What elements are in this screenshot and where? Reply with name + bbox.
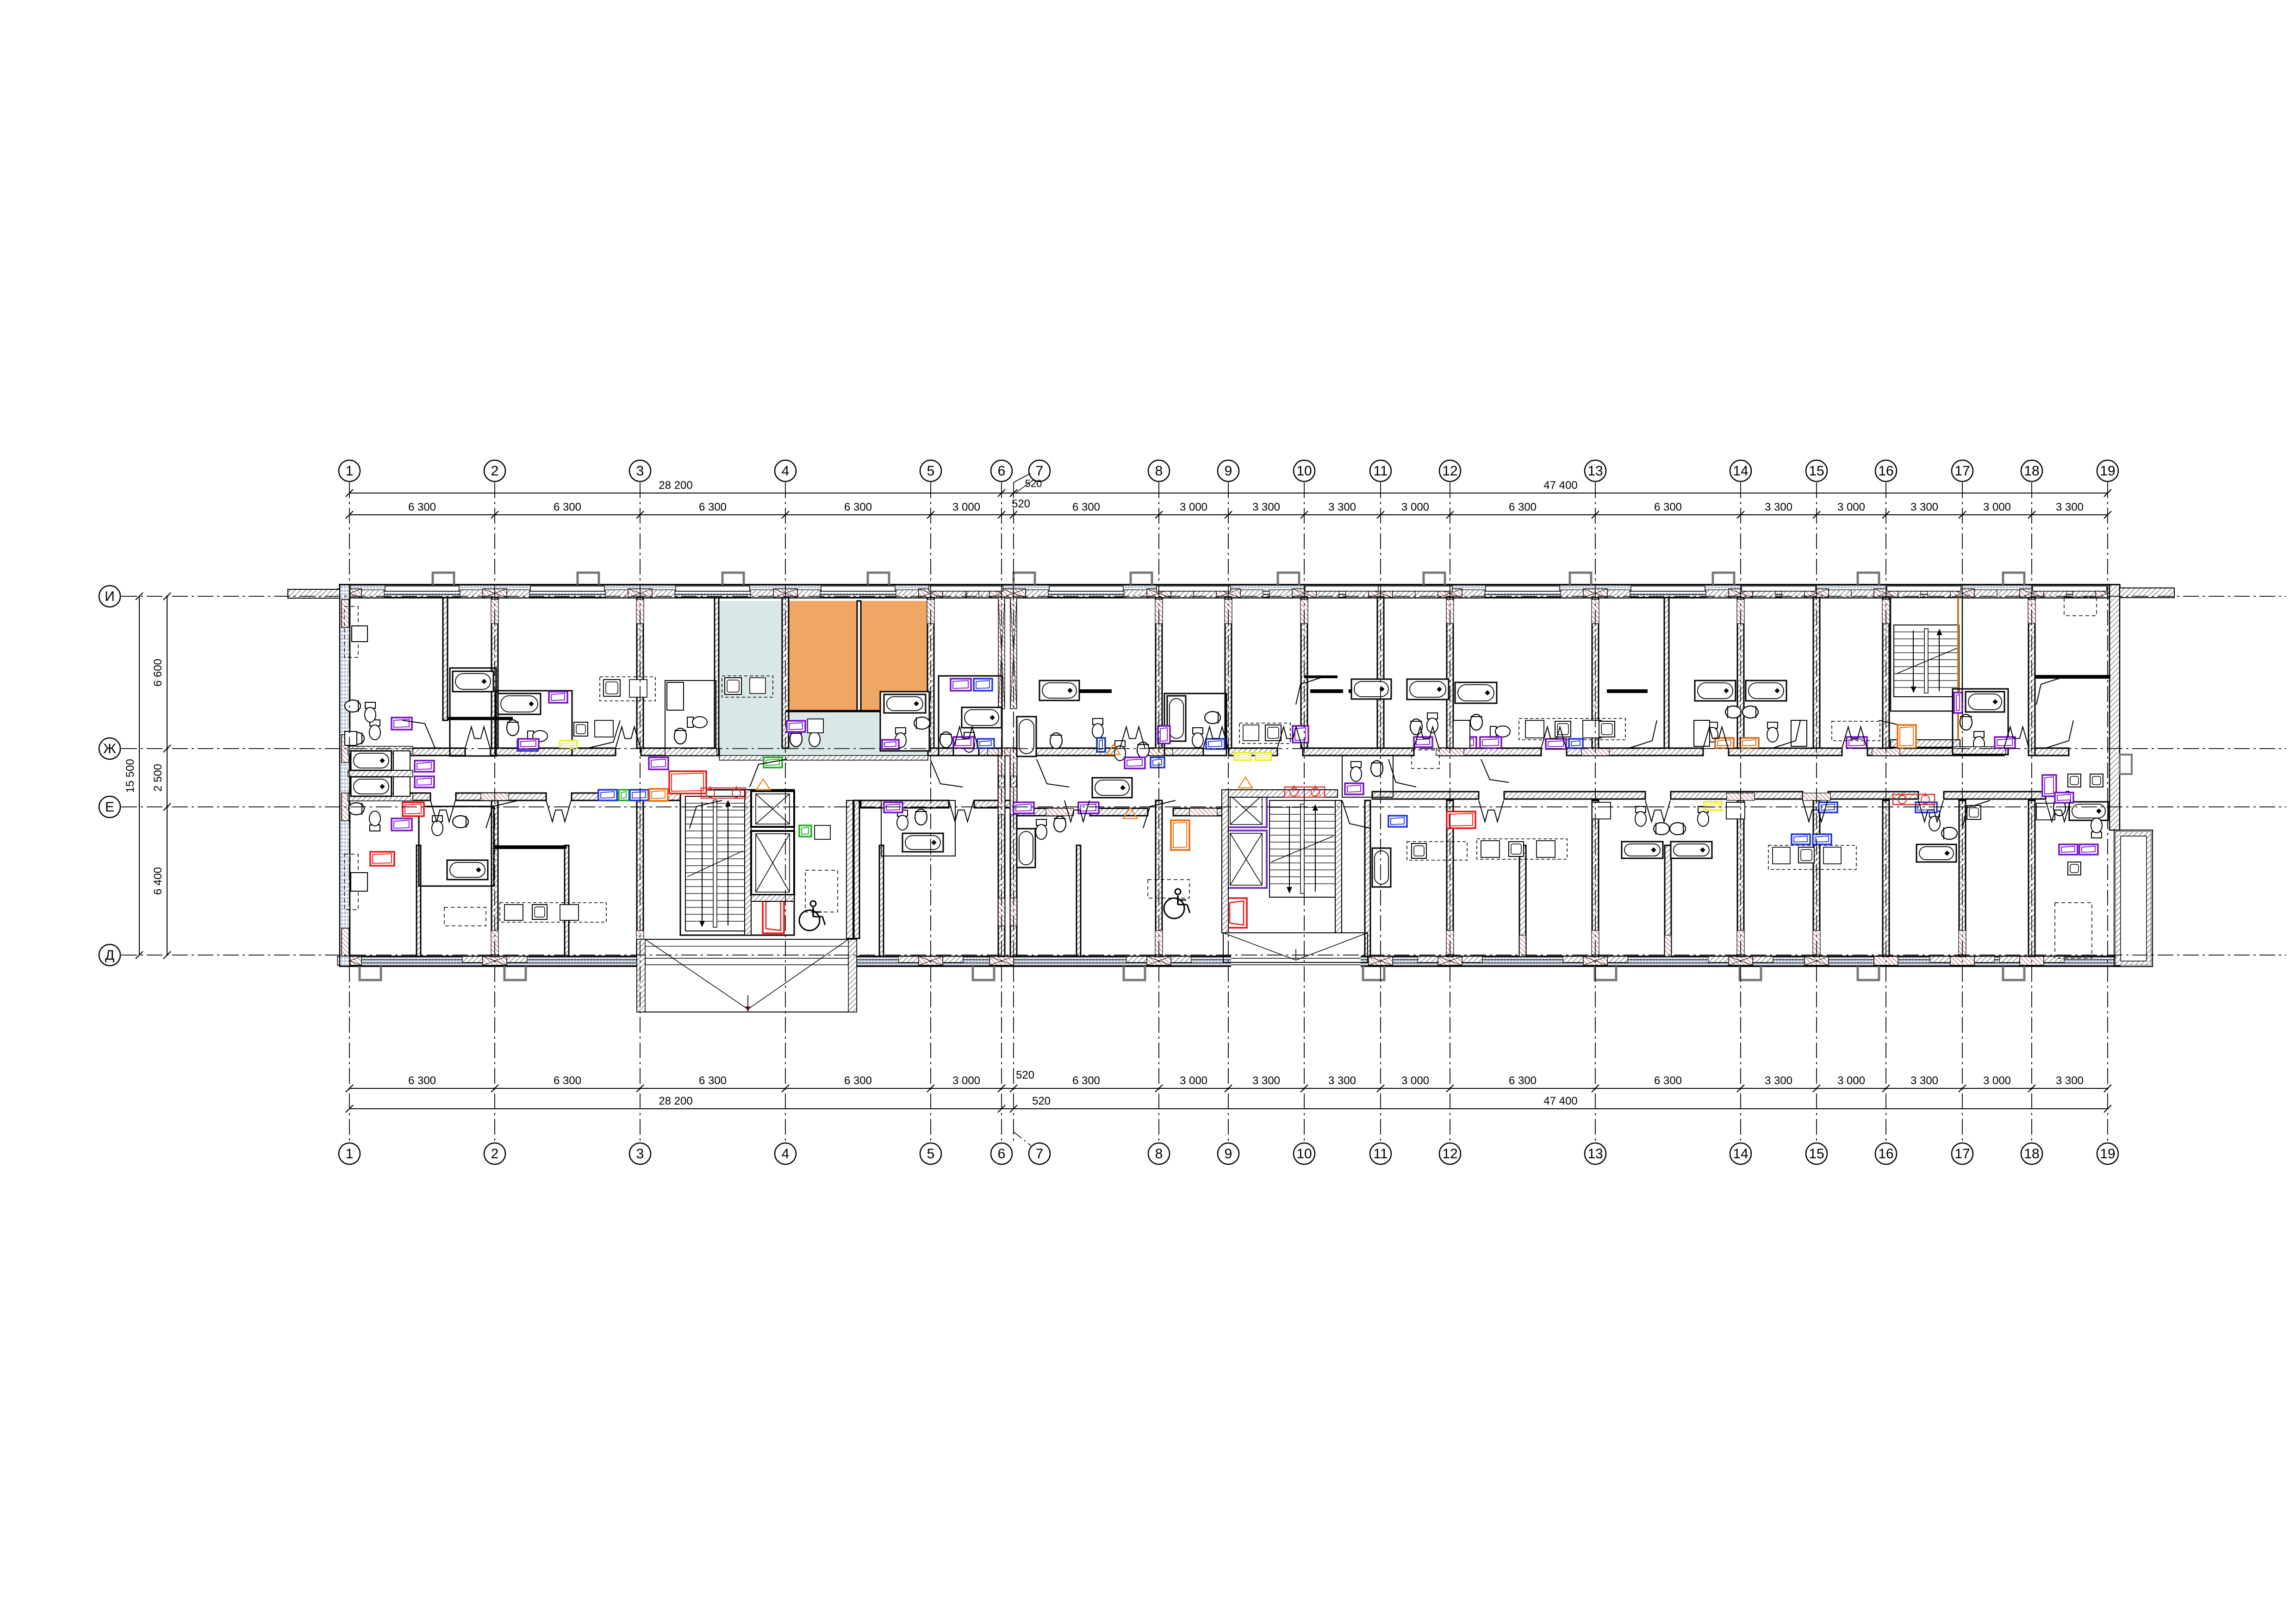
svg-text:11: 11	[1373, 463, 1388, 479]
svg-text:2: 2	[491, 1146, 499, 1162]
svg-text:Ж: Ж	[103, 741, 116, 756]
svg-text:3: 3	[636, 1146, 644, 1162]
svg-text:19: 19	[2100, 1146, 2115, 1162]
svg-text:6 300: 6 300	[1654, 501, 1682, 513]
svg-text:6 300: 6 300	[844, 1074, 872, 1087]
svg-text:6 300: 6 300	[1072, 1074, 1100, 1087]
svg-text:6 300: 6 300	[699, 1074, 727, 1087]
svg-text:3 000: 3 000	[1180, 501, 1207, 513]
svg-text:6: 6	[998, 463, 1006, 479]
svg-text:6 300: 6 300	[844, 501, 872, 513]
svg-text:6 300: 6 300	[1509, 501, 1537, 513]
svg-text:7: 7	[1036, 463, 1044, 479]
svg-text:28 200: 28 200	[659, 479, 692, 492]
svg-text:11: 11	[1373, 1146, 1388, 1162]
svg-text:Д: Д	[105, 948, 114, 963]
svg-text:18: 18	[2024, 463, 2039, 479]
svg-text:3 300: 3 300	[1910, 501, 1938, 513]
svg-text:15: 15	[1809, 1146, 1824, 1162]
svg-text:3 000: 3 000	[1983, 501, 2011, 513]
svg-text:3 000: 3 000	[1983, 1074, 2011, 1087]
svg-text:15: 15	[1809, 463, 1824, 479]
svg-text:3 300: 3 300	[2056, 1074, 2084, 1087]
svg-text:520: 520	[1012, 498, 1030, 510]
svg-text:Е: Е	[105, 800, 114, 815]
svg-text:47 400: 47 400	[1543, 479, 1577, 492]
svg-text:3 000: 3 000	[1401, 1074, 1429, 1087]
svg-text:6 400: 6 400	[152, 867, 164, 895]
svg-text:13: 13	[1587, 463, 1603, 479]
svg-text:3 300: 3 300	[1252, 501, 1280, 513]
svg-text:9: 9	[1225, 463, 1232, 479]
svg-text:520: 520	[1016, 1069, 1034, 1081]
svg-text:16: 16	[1878, 1146, 1893, 1162]
svg-text:3 300: 3 300	[1328, 1074, 1356, 1087]
svg-text:6 300: 6 300	[408, 1074, 436, 1087]
svg-text:3 300: 3 300	[2056, 501, 2084, 513]
svg-text:И: И	[105, 589, 115, 604]
svg-text:13: 13	[1587, 1146, 1603, 1162]
svg-text:6 300: 6 300	[699, 501, 727, 513]
svg-text:6 600: 6 600	[152, 659, 164, 687]
svg-text:3 300: 3 300	[1910, 1074, 1938, 1087]
svg-text:4: 4	[782, 463, 790, 479]
svg-text:3 000: 3 000	[1180, 1074, 1207, 1087]
svg-text:520: 520	[1032, 1095, 1051, 1107]
svg-text:15 500: 15 500	[124, 759, 137, 793]
svg-text:6: 6	[998, 1146, 1006, 1162]
svg-text:3 000: 3 000	[952, 501, 980, 513]
svg-text:6 300: 6 300	[1654, 1074, 1682, 1087]
svg-text:6 300: 6 300	[554, 501, 581, 513]
svg-text:3 300: 3 300	[1252, 1074, 1280, 1087]
svg-text:9: 9	[1225, 1146, 1232, 1162]
svg-text:6 300: 6 300	[1509, 1074, 1537, 1087]
svg-text:3 300: 3 300	[1765, 1074, 1792, 1087]
svg-text:1: 1	[346, 1146, 354, 1162]
svg-text:3 000: 3 000	[1837, 1074, 1865, 1087]
svg-text:10: 10	[1296, 463, 1312, 479]
svg-text:2: 2	[491, 463, 499, 479]
svg-text:10: 10	[1296, 1146, 1312, 1162]
svg-text:6 300: 6 300	[408, 501, 436, 513]
svg-text:8: 8	[1155, 463, 1163, 479]
svg-text:3 300: 3 300	[1765, 501, 1792, 513]
svg-text:6 300: 6 300	[1072, 501, 1100, 513]
svg-text:6 300: 6 300	[554, 1074, 581, 1087]
svg-text:16: 16	[1878, 463, 1893, 479]
svg-text:47 400: 47 400	[1543, 1095, 1577, 1107]
svg-text:7: 7	[1036, 1146, 1044, 1162]
svg-text:12: 12	[1442, 463, 1457, 479]
svg-text:1: 1	[346, 463, 354, 479]
svg-text:5: 5	[927, 1146, 935, 1162]
svg-text:2 500: 2 500	[152, 764, 164, 792]
svg-text:3 300: 3 300	[1328, 501, 1356, 513]
svg-text:17: 17	[1954, 463, 1970, 479]
svg-text:5: 5	[927, 463, 935, 479]
svg-text:3 000: 3 000	[1401, 501, 1429, 513]
svg-text:3 000: 3 000	[1837, 501, 1865, 513]
svg-text:8: 8	[1155, 1146, 1163, 1162]
svg-text:3: 3	[636, 463, 644, 479]
svg-text:14: 14	[1733, 1146, 1748, 1162]
svg-text:28 200: 28 200	[659, 1095, 692, 1107]
svg-text:14: 14	[1733, 463, 1748, 479]
svg-text:18: 18	[2024, 1146, 2039, 1162]
svg-text:12: 12	[1442, 1146, 1457, 1162]
svg-text:4: 4	[782, 1146, 790, 1162]
svg-text:17: 17	[1954, 1146, 1970, 1162]
svg-text:3 000: 3 000	[952, 1074, 980, 1087]
svg-text:19: 19	[2100, 463, 2115, 479]
